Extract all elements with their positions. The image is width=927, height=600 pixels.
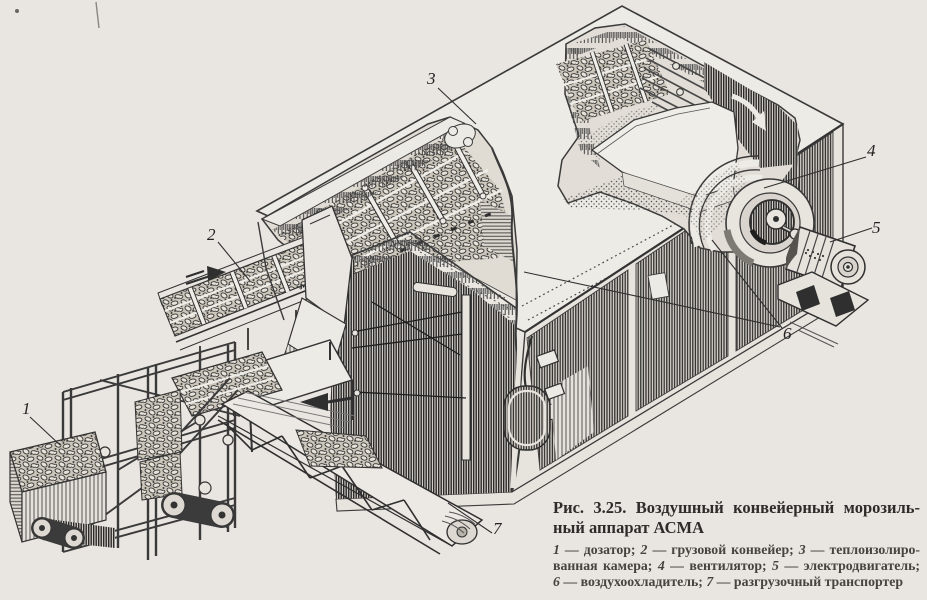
svg-text:3: 3 xyxy=(426,69,436,88)
svg-text:2: 2 xyxy=(207,225,216,244)
svg-text:1: 1 xyxy=(22,399,31,418)
svg-text:6: 6 xyxy=(783,324,792,343)
svg-text:5: 5 xyxy=(872,218,881,237)
svg-text:4: 4 xyxy=(867,141,876,160)
